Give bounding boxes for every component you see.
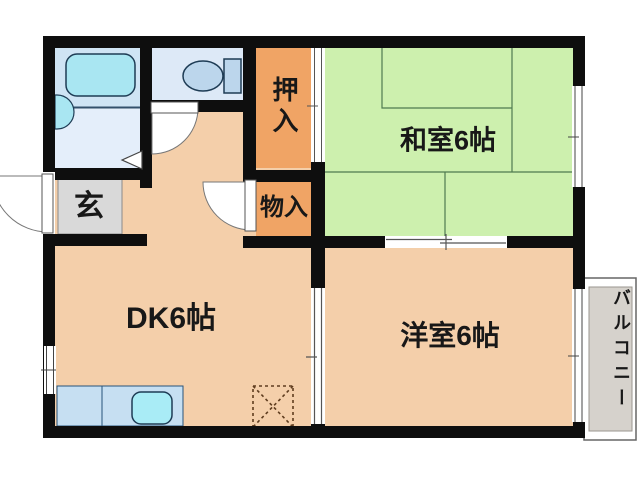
monoire-door-leaf — [245, 180, 256, 231]
floor-plan-drawing — [0, 0, 640, 480]
toilet-tank — [224, 59, 241, 93]
entry-door-swing — [0, 176, 48, 232]
label-washitsu: 和室6帖 — [400, 128, 496, 155]
label-oshiire: 押入 — [271, 76, 297, 138]
kitchen-sink — [132, 392, 172, 424]
toilet-bowl — [183, 61, 223, 91]
entry-door-leaf — [42, 174, 53, 233]
label-dk: DK6帖 — [126, 304, 216, 334]
sliding-door-dk-yoshitsu — [311, 288, 325, 424]
wall-washroom-bottom — [43, 168, 147, 180]
label-balcony: バルコニー — [612, 288, 630, 413]
label-monoire: 物入 — [260, 196, 308, 220]
sliding-door-oshiire — [311, 48, 325, 162]
bathtub — [66, 54, 135, 96]
toilet-door-leaf — [151, 102, 198, 113]
label-yoshitsu: 洋室6帖 — [400, 322, 500, 350]
floor-plan-canvas: 玄 DK6帖 和室6帖 洋室6帖 物入 押入 バルコニー — [0, 0, 640, 480]
wall-oshiire-left — [243, 40, 256, 182]
label-genkan: 玄 — [74, 192, 104, 222]
wall-genkan-bottom — [43, 234, 147, 246]
